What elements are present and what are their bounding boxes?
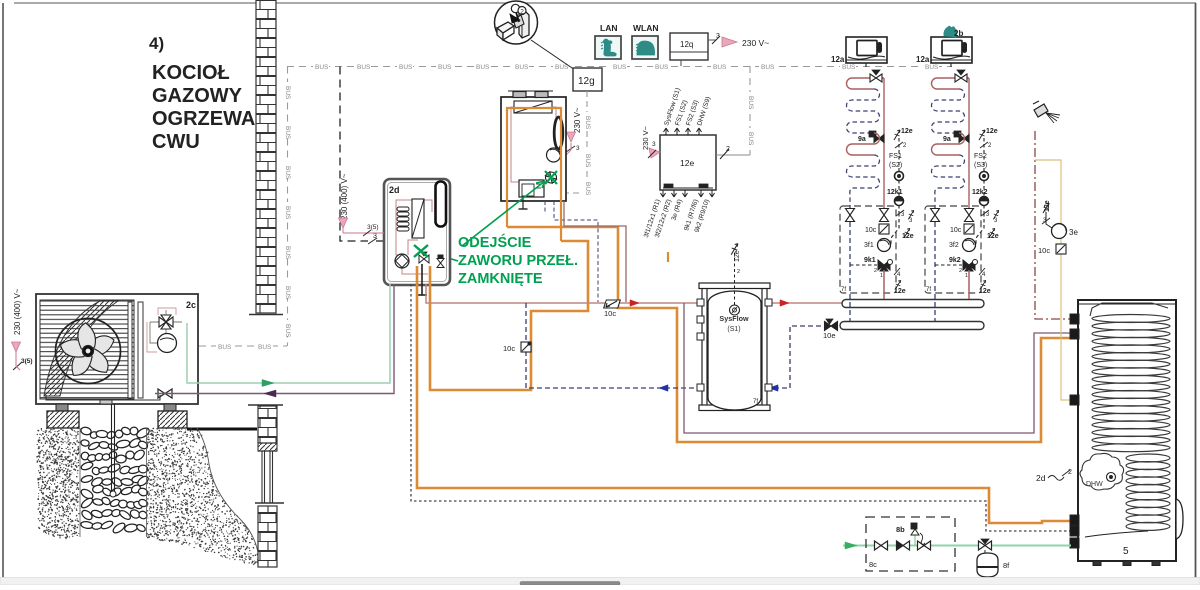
svg-text:SysFlow: SysFlow bbox=[719, 314, 749, 323]
svg-text:BUS: BUS bbox=[258, 344, 272, 351]
svg-text:7f: 7f bbox=[753, 399, 758, 405]
svg-text:BUS: BUS bbox=[713, 64, 727, 71]
svg-text:7f: 7f bbox=[841, 287, 846, 293]
svg-text:9a: 9a bbox=[943, 136, 951, 143]
svg-text:12a: 12a bbox=[831, 55, 845, 64]
svg-text:BUS: BUS bbox=[284, 86, 291, 100]
svg-text:BUS: BUS bbox=[284, 324, 291, 338]
svg-text:FS1: FS1 bbox=[889, 153, 902, 160]
svg-text:12e: 12e bbox=[734, 250, 741, 262]
svg-text:BUS: BUS bbox=[284, 286, 291, 300]
svg-text:12e: 12e bbox=[987, 233, 999, 240]
svg-text:12k2: 12k2 bbox=[972, 189, 988, 196]
svg-text:230 V~: 230 V~ bbox=[573, 107, 582, 133]
svg-text:230 V~: 230 V~ bbox=[641, 125, 650, 150]
svg-text:10e: 10e bbox=[823, 331, 836, 340]
svg-text:2: 2 bbox=[959, 268, 962, 274]
svg-text:12k1: 12k1 bbox=[887, 189, 903, 196]
svg-text:12q: 12q bbox=[680, 40, 693, 49]
svg-text:BUS: BUS bbox=[284, 246, 291, 260]
svg-text:2c: 2c bbox=[186, 300, 196, 310]
svg-text:KOCIOŁ: KOCIOŁ bbox=[152, 62, 230, 84]
svg-text:2d: 2d bbox=[1036, 473, 1046, 483]
svg-text:LAN: LAN bbox=[600, 23, 617, 33]
svg-text:BUS: BUS bbox=[613, 64, 627, 71]
svg-text:2: 2 bbox=[874, 268, 877, 274]
svg-text:10c: 10c bbox=[865, 227, 877, 234]
svg-text:3(5): 3(5) bbox=[21, 358, 33, 365]
svg-text:2b: 2b bbox=[954, 29, 963, 38]
svg-text:8c: 8c bbox=[869, 560, 877, 569]
svg-text:BUS: BUS bbox=[747, 96, 754, 110]
svg-text:BUS: BUS bbox=[584, 154, 591, 168]
svg-text:BUS: BUS bbox=[925, 64, 939, 71]
svg-text:DHW: DHW bbox=[1086, 481, 1103, 488]
svg-text:3(5): 3(5) bbox=[367, 224, 379, 231]
svg-text:7f: 7f bbox=[926, 287, 931, 293]
svg-text:BUS: BUS bbox=[584, 182, 591, 196]
svg-text:10c: 10c bbox=[503, 344, 515, 353]
svg-text:FS2: FS2 bbox=[974, 153, 987, 160]
svg-text:8f: 8f bbox=[1003, 561, 1010, 570]
svg-text:9k2: 9k2 bbox=[949, 257, 961, 264]
svg-text:5: 5 bbox=[1123, 546, 1129, 557]
svg-text:BUS: BUS bbox=[399, 64, 413, 71]
svg-text:BUS: BUS bbox=[438, 64, 452, 71]
svg-text:(S3): (S3) bbox=[974, 162, 987, 169]
svg-text:12a: 12a bbox=[916, 55, 930, 64]
svg-text:1: 1 bbox=[965, 273, 968, 279]
svg-text:10c: 10c bbox=[950, 227, 962, 234]
svg-text:BUS: BUS bbox=[315, 64, 329, 71]
svg-text:BUS: BUS bbox=[842, 64, 856, 71]
svg-text:ZAWORU PRZEŁ.: ZAWORU PRZEŁ. bbox=[458, 253, 578, 269]
svg-text:8b: 8b bbox=[896, 525, 905, 534]
svg-text:12e: 12e bbox=[979, 288, 991, 295]
svg-text:ZAMKNIĘTE: ZAMKNIĘTE bbox=[458, 271, 543, 287]
svg-text:3f1: 3f1 bbox=[864, 242, 874, 249]
svg-text:BUS: BUS bbox=[284, 126, 291, 140]
svg-text:12e: 12e bbox=[894, 288, 906, 295]
svg-text:230 V~: 230 V~ bbox=[742, 38, 769, 48]
svg-text:10c: 10c bbox=[1038, 246, 1050, 255]
svg-text:230 (400) V~: 230 (400) V~ bbox=[340, 173, 349, 220]
svg-text:BUS: BUS bbox=[584, 116, 591, 130]
svg-text:12e: 12e bbox=[902, 233, 914, 240]
svg-text:3: 3 bbox=[716, 33, 720, 40]
svg-text:12e: 12e bbox=[986, 128, 998, 135]
svg-text:CWU: CWU bbox=[152, 131, 200, 153]
svg-text:BUS: BUS bbox=[747, 132, 754, 146]
svg-text:BUS: BUS bbox=[218, 344, 232, 351]
svg-text:10c: 10c bbox=[604, 309, 616, 318]
svg-text:2: 2 bbox=[1068, 469, 1072, 476]
svg-text:ODEJŚCIE: ODEJŚCIE bbox=[458, 233, 532, 251]
svg-text:3f2: 3f2 bbox=[949, 242, 959, 249]
svg-text:4): 4) bbox=[149, 34, 164, 53]
svg-text:3: 3 bbox=[652, 141, 656, 148]
svg-text:BUS: BUS bbox=[655, 64, 669, 71]
svg-text:230 (400) V~: 230 (400) V~ bbox=[13, 288, 22, 335]
svg-text:12e: 12e bbox=[680, 158, 694, 168]
svg-text:1: 1 bbox=[880, 273, 883, 279]
svg-text:BUS: BUS bbox=[761, 64, 775, 71]
svg-text:(S2): (S2) bbox=[889, 162, 902, 169]
svg-text:12e: 12e bbox=[1044, 200, 1051, 212]
svg-text:BUS: BUS bbox=[357, 64, 371, 71]
svg-text:2: 2 bbox=[726, 146, 730, 153]
svg-text:BUS: BUS bbox=[284, 166, 291, 180]
svg-text:3: 3 bbox=[576, 145, 580, 152]
svg-text:12e: 12e bbox=[901, 128, 913, 135]
svg-text:OGRZEWA: OGRZEWA bbox=[152, 108, 255, 130]
svg-text:WLAN: WLAN bbox=[633, 23, 659, 33]
svg-text:BUS: BUS bbox=[284, 206, 291, 220]
svg-text:2d: 2d bbox=[389, 185, 400, 195]
svg-text:12g: 12g bbox=[578, 76, 595, 87]
svg-text:9a: 9a bbox=[858, 136, 866, 143]
svg-text:9k1: 9k1 bbox=[864, 257, 876, 264]
svg-text:BUS: BUS bbox=[515, 64, 529, 71]
svg-text:2: 2 bbox=[520, 9, 524, 16]
svg-text:(S1): (S1) bbox=[727, 326, 740, 333]
svg-text:2: 2 bbox=[737, 269, 740, 275]
svg-text:3e: 3e bbox=[1069, 228, 1078, 237]
svg-text:GAZOWY: GAZOWY bbox=[152, 85, 243, 107]
svg-text:BUS: BUS bbox=[476, 64, 490, 71]
